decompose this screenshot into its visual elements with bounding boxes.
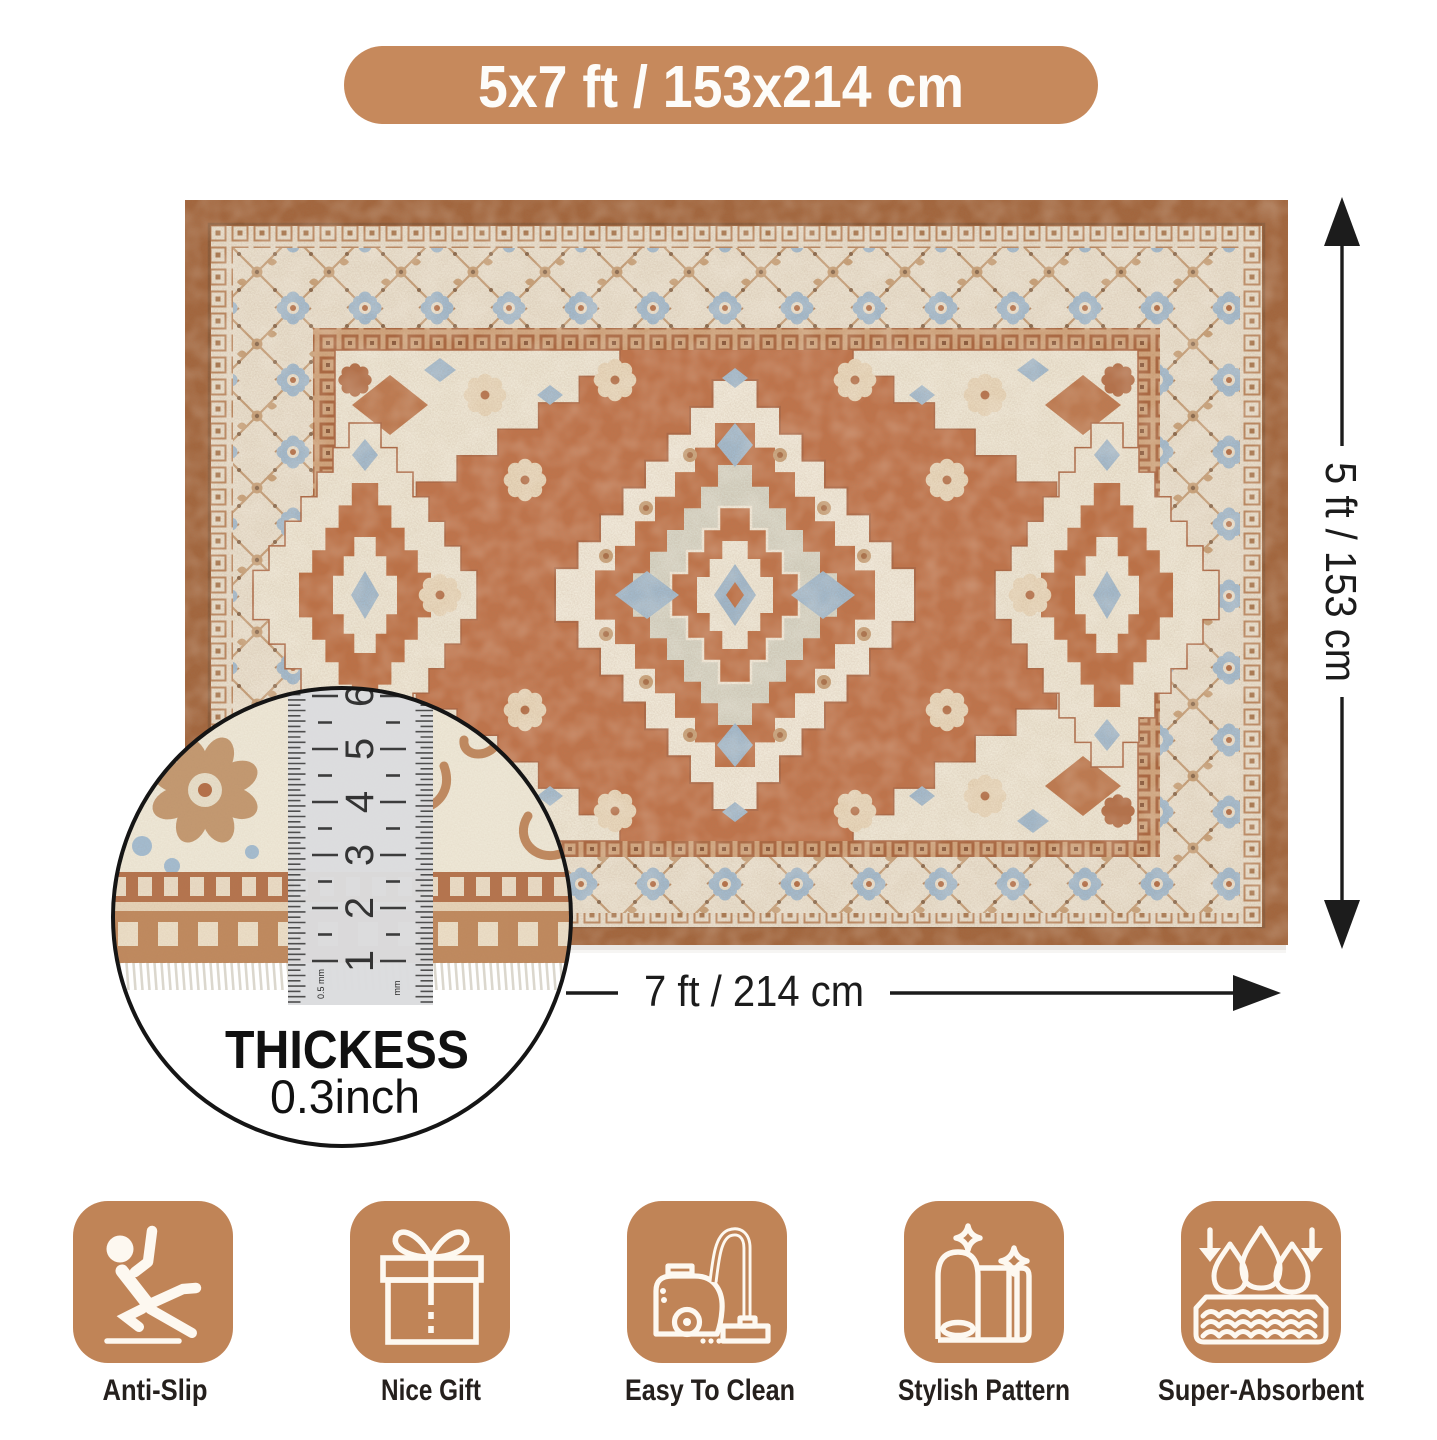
svg-text:2: 2 [338,897,382,919]
svg-text:1: 1 [338,950,382,972]
svg-text:3: 3 [338,844,382,866]
svg-text:Stylish Pattern: Stylish Pattern [898,1374,1070,1407]
svg-text:Nice Gift: Nice Gift [381,1374,481,1407]
svg-text:mm: mm [392,981,402,996]
svg-text:4: 4 [338,791,382,813]
svg-text:5 ft / 153 cm: 5 ft / 153 cm [1316,462,1365,682]
svg-text:5: 5 [338,738,382,760]
svg-text:Easy To Clean: Easy To Clean [625,1374,795,1407]
svg-text:Super-Absorbent: Super-Absorbent [1158,1374,1364,1407]
svg-text:7 ft / 214 cm: 7 ft / 214 cm [644,967,864,1016]
svg-text:Anti-Slip: Anti-Slip [103,1374,208,1407]
svg-text:0.3inch: 0.3inch [270,1070,420,1123]
svg-text:0.5 mm: 0.5 mm [316,969,326,999]
svg-text:5x7 ft / 153x214 cm: 5x7 ft / 153x214 cm [478,54,964,120]
